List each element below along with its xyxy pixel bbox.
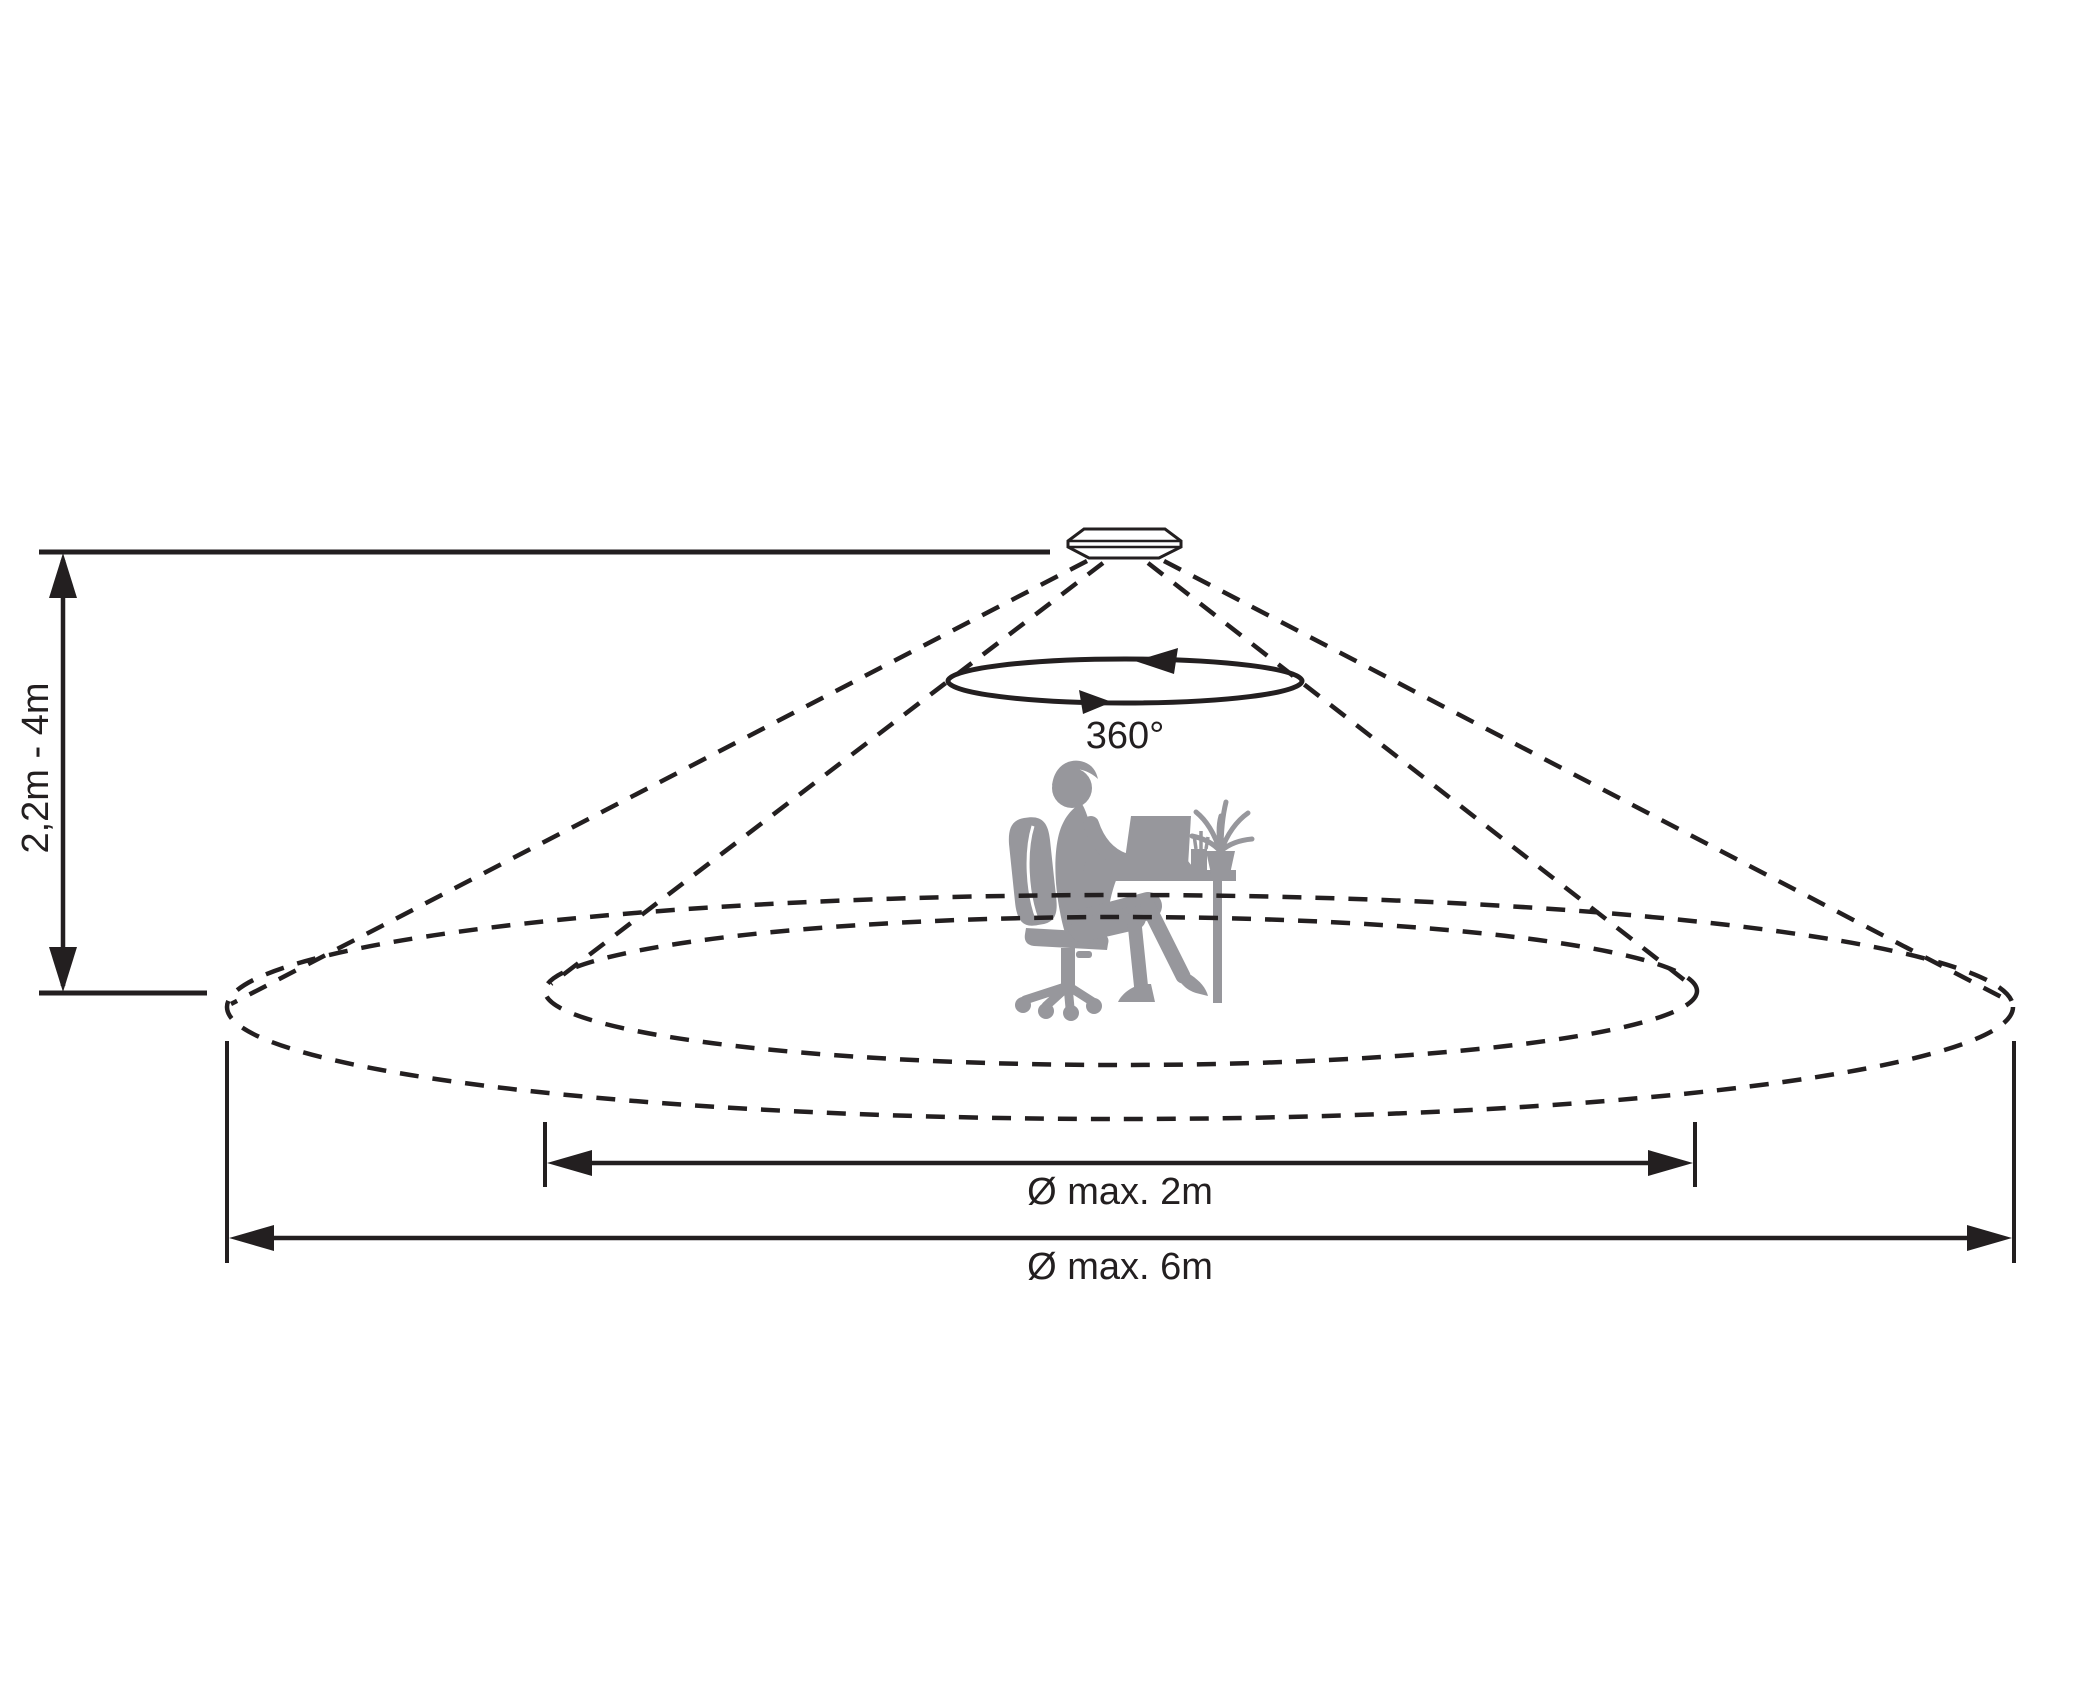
inner-presence-zone-ellipse xyxy=(545,917,1697,1065)
person-back-shin xyxy=(1134,918,1141,986)
caster-wheel xyxy=(1063,1005,1079,1021)
rotation-indicator: 360° xyxy=(948,648,1302,757)
outer-diameter-arrow-right-icon xyxy=(1967,1225,2012,1251)
rotation-arrow-bottom-icon xyxy=(1079,690,1112,714)
outer-diameter-ticks xyxy=(227,1041,2014,1263)
desk-leg xyxy=(1213,881,1222,1003)
inner-diameter-arrow-right-icon xyxy=(1648,1150,1693,1176)
diagram-svg: 360° 2,2m - 4m Ø max. 2m Ø max. 6m xyxy=(0,0,2100,1693)
height-dimension: 2,2m - 4m xyxy=(15,553,207,993)
inner-diameter-dimension: Ø max. 2m xyxy=(545,1122,1695,1213)
outer-diameter-arrow-left-icon xyxy=(229,1225,274,1251)
rotation-ellipse xyxy=(948,659,1302,703)
person-back-foot xyxy=(1118,984,1155,1002)
chair-column xyxy=(1061,948,1075,986)
person-at-desk-silhouette xyxy=(1009,761,1252,1021)
outer-diameter-label: Ø max. 6m xyxy=(1027,1246,1213,1288)
sensor-body xyxy=(1068,529,1181,558)
caster-wheel xyxy=(1086,998,1102,1014)
person-front-foot xyxy=(1174,970,1208,996)
height-arrow-down-icon xyxy=(49,947,77,992)
inner-diameter-arrow-left-icon xyxy=(547,1150,592,1176)
laptop-screen xyxy=(1124,816,1191,866)
ceiling-sensor xyxy=(1068,529,1181,558)
chair-lever xyxy=(1076,951,1092,958)
height-dimension-label: 2,2m - 4m xyxy=(15,682,57,853)
person-figure xyxy=(1052,761,1208,1002)
height-arrow-up-icon xyxy=(49,553,77,598)
caster-wheel xyxy=(1015,997,1031,1013)
detection-range-diagram: 360° 2,2m - 4m Ø max. 2m Ø max. 6m xyxy=(0,0,2100,1693)
inner-diameter-label: Ø max. 2m xyxy=(1027,1171,1213,1213)
rotation-arrow-top-icon xyxy=(1135,648,1178,674)
pen-cup-body xyxy=(1191,849,1207,872)
plant-pot xyxy=(1206,851,1235,874)
detection-cone-lines xyxy=(231,561,2009,1004)
caster-wheel xyxy=(1038,1003,1054,1019)
rotation-angle-label: 360° xyxy=(1086,715,1165,757)
laptop-keyboard xyxy=(1083,861,1196,871)
person-back-thigh xyxy=(1082,918,1134,930)
chair-base-legs xyxy=(1025,986,1093,1008)
